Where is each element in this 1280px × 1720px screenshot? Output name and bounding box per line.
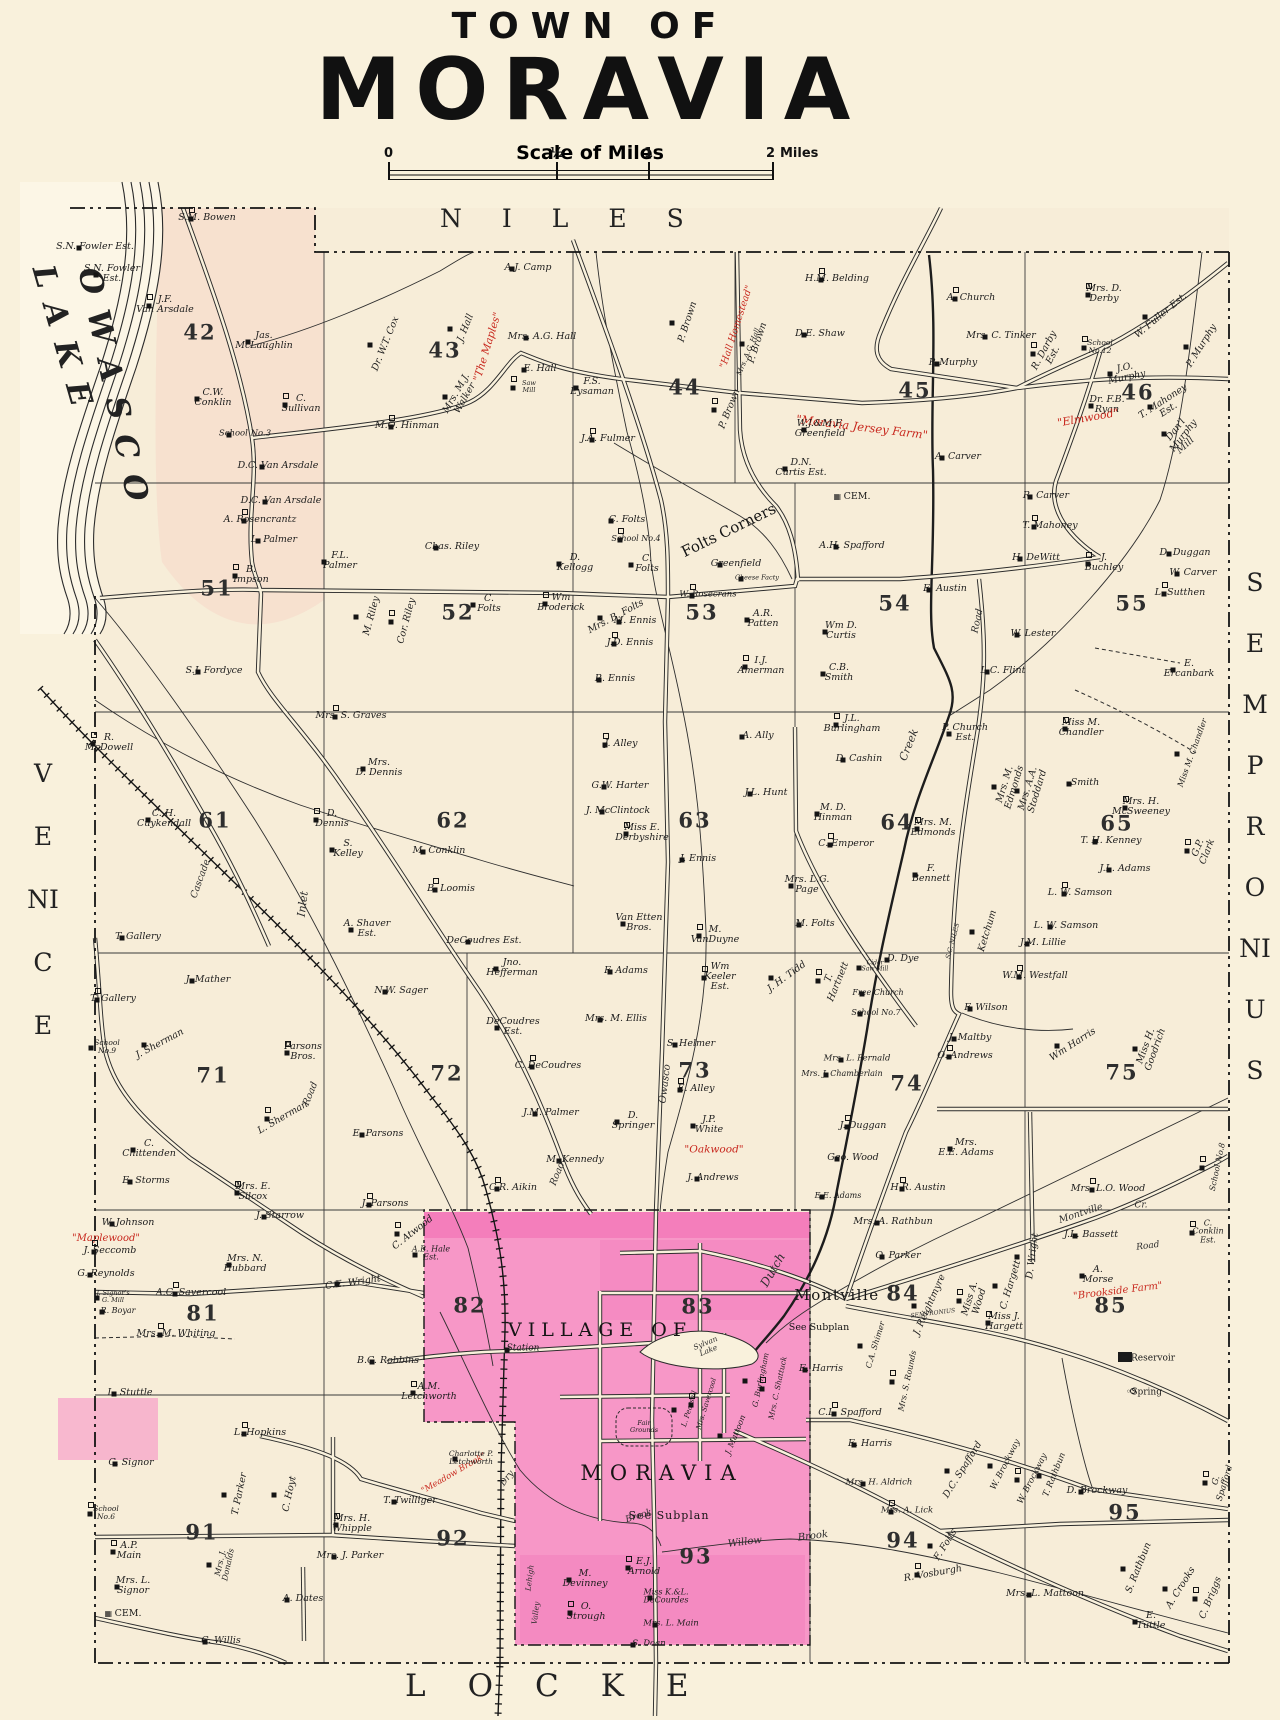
lot-number: 92 (436, 1526, 469, 1551)
house-marker (349, 928, 354, 933)
house-marker (952, 1037, 957, 1042)
map-label: CEM. (104, 1609, 141, 1619)
map-label: Saw Mill (522, 380, 536, 394)
map-label: A.P. Main (117, 1541, 142, 1561)
map-label: J. McClintock (586, 806, 650, 816)
map-label: Lehigh (524, 1564, 535, 1591)
house-marker (915, 827, 920, 832)
outbuilding-marker (957, 1289, 963, 1295)
outbuilding-marker (1185, 839, 1191, 845)
lot-number: 91 (185, 1520, 218, 1545)
lot-number: 74 (890, 1071, 923, 1096)
house-marker (598, 616, 603, 621)
house-marker (948, 1147, 953, 1152)
house-marker (433, 888, 438, 893)
outbuilding-marker (612, 632, 618, 638)
house-marker (832, 1412, 837, 1417)
house-marker (927, 588, 932, 593)
house-marker (947, 732, 952, 737)
house-marker (819, 278, 824, 283)
house-marker (590, 438, 595, 443)
map-label: F. Folts (933, 1528, 960, 1563)
house-marker (112, 1392, 117, 1397)
house-marker (1015, 1255, 1020, 1260)
outbuilding-marker (233, 564, 239, 570)
outbuilding-marker (283, 393, 289, 399)
house-marker (242, 519, 247, 524)
map-label: D. Dennis (315, 809, 348, 829)
outbuilding-marker (511, 376, 517, 382)
map-label: See Subplan (789, 1323, 849, 1333)
outbuilding-marker (111, 1540, 117, 1546)
outbuilding-marker (689, 1393, 695, 1399)
outbuilding-marker (1031, 342, 1037, 348)
house-marker (222, 1493, 227, 1498)
house-marker (1089, 404, 1094, 409)
map-label: C. Folts (477, 594, 501, 614)
house-marker (524, 336, 529, 341)
map-label: D. Brockway (1067, 1486, 1128, 1496)
map-label: E. Tuttle (1137, 1611, 1166, 1631)
house-marker (1121, 1567, 1126, 1572)
house-marker (1086, 562, 1091, 567)
house-marker (367, 1203, 372, 1208)
map-label: J. Signor's G. Mill (96, 1290, 129, 1304)
map-label: School No.8 (1209, 1142, 1227, 1192)
map-label: J. Ennis (680, 854, 716, 864)
outbuilding-marker (543, 592, 549, 598)
house-marker (443, 395, 448, 400)
map-label: C.A. Shimer (865, 1321, 887, 1370)
outbuilding-marker (947, 1045, 953, 1051)
house-marker (330, 848, 335, 853)
map-label: Dr. W.T. Cox (371, 315, 402, 372)
house-marker (1090, 1188, 1095, 1193)
house-marker (852, 1443, 857, 1448)
house-marker (111, 1550, 116, 1555)
lot-number: 84 (886, 1281, 919, 1306)
map-label: M. Riley (362, 595, 382, 636)
house-marker (383, 990, 388, 995)
map-label: C.E. Wright (325, 1274, 382, 1292)
house-marker (533, 1112, 538, 1117)
map-label: Road (302, 1081, 320, 1108)
lot-number: 65 (1100, 811, 1133, 836)
map-label: P. Murphy (1185, 323, 1219, 369)
house-marker (1133, 1047, 1138, 1052)
house-marker (1067, 782, 1072, 787)
outbuilding-marker (690, 584, 696, 590)
outbuilding-marker (189, 207, 195, 213)
lot-number: 46 (1121, 380, 1154, 405)
map-label: G. Spafford (1207, 1462, 1235, 1503)
map-label: G. Reynolds (77, 1269, 134, 1279)
map-label: C. Briggs (1198, 1575, 1224, 1620)
map-labels-layer: S.M. BowenS.N. Fowler Est.S.N. Fowler Es… (0, 0, 1280, 1720)
map-label: MORAVIA (580, 1462, 743, 1484)
house-marker (624, 832, 629, 837)
map-label: J.F. Van Arsdale (136, 295, 193, 315)
outbuilding-marker (697, 924, 703, 930)
map-label: G.W. Harter (592, 781, 649, 791)
house-marker (92, 1250, 97, 1255)
map-label: T. Parker (231, 1472, 250, 1516)
map-label: Folts Corners (679, 501, 778, 560)
house-marker (100, 1310, 105, 1315)
house-marker (370, 1360, 375, 1365)
lot-number: 51 (200, 576, 233, 601)
house-marker (227, 1263, 232, 1268)
house-marker (335, 1282, 340, 1287)
house-marker (621, 922, 626, 927)
map-label: G.P. Clark (1189, 834, 1217, 866)
house-marker (94, 273, 99, 278)
lot-number: 71 (196, 1063, 229, 1088)
house-marker (128, 1180, 133, 1185)
house-marker (629, 563, 634, 568)
outbuilding-marker (91, 732, 97, 738)
map-label: Brook (797, 1530, 828, 1544)
map-label: School No.12 (1087, 339, 1113, 355)
map-label: Sylvan Lake (692, 1335, 721, 1359)
house-marker (361, 767, 366, 772)
outbuilding-marker (389, 415, 395, 421)
map-label: CEM. (833, 492, 870, 502)
house-marker (820, 1195, 825, 1200)
outbuilding-marker (1086, 283, 1092, 289)
house-marker (858, 1012, 863, 1017)
map-label: Jas. McLaughlin (235, 331, 293, 351)
house-marker (448, 327, 453, 332)
map-label: Smith (1071, 778, 1100, 788)
map-label: School No.9 (94, 1039, 120, 1055)
house-marker (857, 966, 862, 971)
outbuilding-marker (530, 1055, 536, 1061)
outbuilding-marker (411, 1381, 417, 1387)
house-marker (834, 545, 839, 550)
map-label: C.B. Smith (825, 663, 854, 683)
map-label: DeCoudres Est. (446, 936, 521, 946)
lot-number: 63 (678, 808, 711, 833)
house-marker (189, 217, 194, 222)
house-marker (146, 818, 151, 823)
house-marker (803, 1368, 808, 1373)
map-label: F. Bennett (912, 864, 950, 884)
house-marker (285, 1051, 290, 1056)
house-marker (173, 1292, 178, 1297)
lot-number: 82 (453, 1293, 486, 1318)
house-marker (690, 594, 695, 599)
house-marker (227, 433, 232, 438)
house-marker (1162, 432, 1167, 437)
house-marker (1048, 925, 1053, 930)
house-marker (256, 539, 261, 544)
house-marker (769, 976, 774, 981)
map-label: J.L. Burlingham (824, 714, 881, 734)
outbuilding-marker (265, 1107, 271, 1113)
house-marker (615, 1120, 620, 1125)
house-marker (858, 1344, 863, 1349)
map-label: A. Ally (742, 731, 773, 741)
lot-number: 53 (685, 600, 718, 625)
house-marker (466, 940, 471, 945)
map-label: J.M. Palmer (523, 1108, 579, 1118)
house-marker (263, 500, 268, 505)
house-marker (1184, 345, 1189, 350)
map-label: A. Morse (1083, 1265, 1114, 1285)
house-marker (131, 1148, 136, 1153)
house-marker (207, 1563, 212, 1568)
map-label: Mrs. H. Aldrich (846, 1479, 913, 1488)
map-label: S. Doan (632, 1640, 665, 1649)
house-marker (522, 368, 527, 373)
map-label: T. Hartnett (817, 957, 851, 1003)
map-label: Cr. (1134, 1201, 1147, 1210)
house-marker (285, 1598, 290, 1603)
house-marker (860, 992, 865, 997)
house-marker (968, 1007, 973, 1012)
house-marker (695, 1177, 700, 1182)
house-marker (603, 743, 608, 748)
house-marker (1025, 942, 1030, 947)
house-marker (718, 1434, 723, 1439)
outbuilding-marker (986, 1311, 992, 1317)
house-marker (743, 665, 748, 670)
house-marker (673, 1043, 678, 1048)
map-label: C. DeCoudres (515, 1061, 581, 1071)
house-marker (1080, 1274, 1085, 1279)
house-marker (797, 923, 802, 928)
map-label: R. Boyar (101, 1307, 136, 1315)
map-label: W. Fuller Est. (1133, 291, 1189, 340)
house-marker (91, 742, 96, 747)
house-marker (841, 758, 846, 763)
house-marker (598, 1018, 603, 1023)
house-marker (389, 620, 394, 625)
map-label: Mrs. A. Rathbun (853, 1217, 932, 1227)
house-marker (689, 1403, 694, 1408)
house-marker (1171, 668, 1176, 673)
house-marker (789, 884, 794, 889)
map-label: A.B. Hale Est. (412, 1246, 450, 1263)
outbuilding-marker (624, 822, 630, 828)
outbuilding-marker (743, 655, 749, 661)
map-label: Mrs. C. Tinker (966, 331, 1036, 341)
map-label: Reservoir (1121, 1354, 1175, 1363)
lot-number: 75 (1105, 1060, 1138, 1085)
outbuilding-marker (367, 1193, 373, 1199)
outbuilding-marker (395, 1222, 401, 1228)
house-marker (392, 1500, 397, 1505)
house-marker (993, 1284, 998, 1289)
house-marker (314, 818, 319, 823)
house-marker (530, 1065, 535, 1070)
lot-number: 54 (878, 591, 911, 616)
house-marker (957, 1299, 962, 1304)
house-marker (1063, 727, 1068, 732)
map-label: Station (507, 1344, 540, 1353)
outbuilding-marker (819, 268, 825, 274)
map-label: "Oakwood" (684, 1144, 743, 1155)
map-label: H.M. Belding (805, 274, 869, 284)
house-marker (890, 1380, 895, 1385)
map-label: D. Kellogg (557, 553, 593, 573)
map-label: J. Mattoon (724, 1414, 747, 1456)
map-label: S. Rathbun (1124, 1541, 1153, 1594)
house-marker (935, 362, 940, 367)
outbuilding-marker (92, 1240, 98, 1246)
map-label: Mrs. L. Fernald (824, 1055, 891, 1064)
house-marker (915, 1573, 920, 1578)
outbuilding-marker (889, 1500, 895, 1506)
house-marker (678, 1088, 683, 1093)
map-label: Mrs. C. Shattuck (767, 1356, 788, 1420)
house-marker (413, 1253, 418, 1258)
house-marker (147, 304, 152, 309)
map-label: VILLAGE OF (508, 1321, 692, 1341)
map-label: J. Alley (604, 739, 637, 749)
map-label: S.C. NILES (945, 922, 961, 959)
outbuilding-marker (88, 1502, 94, 1508)
house-marker (88, 1273, 93, 1278)
outbuilding-marker (1017, 965, 1023, 971)
house-marker (816, 979, 821, 984)
map-label: D.C. Van Arsdale (241, 496, 322, 506)
outbuilding-marker (1190, 1221, 1196, 1227)
house-marker (265, 1117, 270, 1122)
house-marker (875, 1221, 880, 1226)
map-label: L. W. Samson (1048, 888, 1112, 898)
map-label: Mrs. L.O. Wood (1071, 1184, 1145, 1194)
map-label: Miss M. Chandler (1177, 718, 1210, 789)
house-marker (203, 1640, 208, 1645)
house-marker (691, 1124, 696, 1129)
map-label: M. D. Hinman (814, 803, 852, 823)
lot-number: 52 (441, 600, 474, 625)
house-marker (802, 428, 807, 433)
outbuilding-marker (235, 1181, 241, 1187)
map-label: D. Dye (887, 954, 919, 964)
house-marker (120, 936, 125, 941)
map-label: A.H. Spafford (819, 541, 885, 551)
house-marker (1055, 1044, 1060, 1049)
outbuilding-marker (333, 705, 339, 711)
map-label: E. Hall (524, 364, 557, 374)
lot-number: 94 (886, 1528, 919, 1553)
house-marker (815, 812, 820, 817)
house-marker (740, 735, 745, 740)
house-marker (748, 792, 753, 797)
house-marker (1108, 372, 1113, 377)
house-marker (1086, 293, 1091, 298)
map-label: P. Brown (718, 388, 743, 431)
house-marker (1082, 346, 1087, 351)
map-label: S.J. Fordyce (185, 666, 242, 676)
house-marker (543, 602, 548, 607)
map-label: Miss H. Goodrich (1134, 1024, 1168, 1072)
map-label: Cascade (189, 858, 212, 899)
map-label: D. Wright (1025, 1232, 1041, 1279)
outbuilding-marker (314, 808, 320, 814)
lot-number: 93 (679, 1544, 712, 1569)
house-marker (1017, 975, 1022, 980)
map-label: C. Hoyt (281, 1475, 298, 1512)
lot-number: 72 (430, 1061, 463, 1086)
house-marker (453, 1457, 458, 1462)
house-marker (740, 342, 745, 347)
house-marker (360, 1133, 365, 1138)
house-marker (1079, 1490, 1084, 1495)
outbuilding-marker (495, 1177, 501, 1183)
outbuilding-marker (834, 713, 840, 719)
map-label: Inlet (296, 890, 311, 917)
house-marker (1031, 352, 1036, 357)
outbuilding-marker (618, 528, 624, 534)
map-label: C.W. Conklin (194, 388, 231, 408)
house-marker (395, 1232, 400, 1237)
house-marker (835, 1157, 840, 1162)
house-marker (190, 979, 195, 984)
house-marker (648, 1596, 653, 1601)
house-marker (1175, 572, 1180, 577)
house-marker (824, 1073, 829, 1078)
outbuilding-marker (702, 966, 708, 972)
house-marker (823, 630, 828, 635)
house-marker (1015, 633, 1020, 638)
outbuilding-marker (1032, 515, 1038, 521)
map-label: C. Conklin Est. (1192, 1219, 1223, 1244)
house-marker (142, 1043, 147, 1048)
map-label: Dutch (758, 1251, 787, 1289)
outbuilding-marker (1162, 582, 1168, 588)
house-marker (1015, 1478, 1020, 1483)
house-marker (745, 618, 750, 623)
house-marker (421, 850, 426, 855)
house-marker (110, 1222, 115, 1227)
house-marker (653, 1623, 658, 1628)
house-marker (88, 1512, 93, 1517)
house-marker (158, 1333, 163, 1338)
house-marker (928, 1544, 933, 1549)
map-page: TOWN OF MORAVIA Scale of Miles 0 ½ 1 2 M… (0, 0, 1280, 1720)
map-label: "The Maples" (472, 311, 503, 383)
house-marker (1027, 1593, 1032, 1598)
house-marker (1200, 1166, 1205, 1171)
outbuilding-marker (1123, 796, 1129, 802)
house-marker (697, 934, 702, 939)
house-marker (283, 403, 288, 408)
map-label: A.C. Savercool (156, 1288, 226, 1298)
house-marker (612, 642, 617, 647)
map-label: C.L. Spafford (818, 1408, 882, 1418)
map-label: Cider Saw Mill (862, 961, 889, 974)
map-label: Wm Keeler Est. (704, 962, 735, 992)
map-label: Montville (794, 1288, 879, 1304)
map-label: S.M. Bowen (178, 213, 236, 223)
house-marker (334, 1523, 339, 1528)
house-marker (913, 873, 918, 878)
house-marker (743, 1379, 748, 1384)
lot-number: 43 (428, 338, 461, 363)
house-marker (953, 297, 958, 302)
outbuilding-marker (760, 1377, 766, 1383)
map-label: M.O. Hinman (375, 421, 439, 431)
lot-number: 73 (678, 1058, 711, 1083)
house-marker (983, 335, 988, 340)
house-marker (1185, 849, 1190, 854)
map-label: Mrs. Savercool (696, 1377, 719, 1430)
outbuilding-marker (95, 988, 101, 994)
